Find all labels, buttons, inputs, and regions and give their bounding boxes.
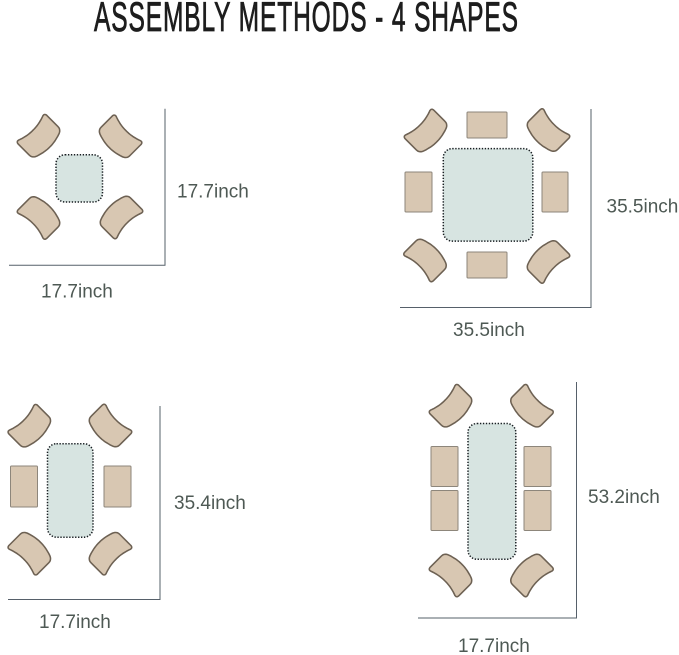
svg-text:35.4inch: 35.4inch [174, 493, 246, 514]
svg-text:17.7inch: 17.7inch [39, 612, 111, 633]
svg-text:35.5inch: 35.5inch [453, 320, 525, 341]
svg-text:35.5inch: 35.5inch [607, 197, 679, 218]
svg-text:53.2inch: 53.2inch [588, 487, 660, 508]
svg-text:17.7inch: 17.7inch [41, 282, 113, 303]
svg-text:17.7inch: 17.7inch [177, 182, 249, 203]
svg-text:17.7inch: 17.7inch [458, 636, 530, 655]
